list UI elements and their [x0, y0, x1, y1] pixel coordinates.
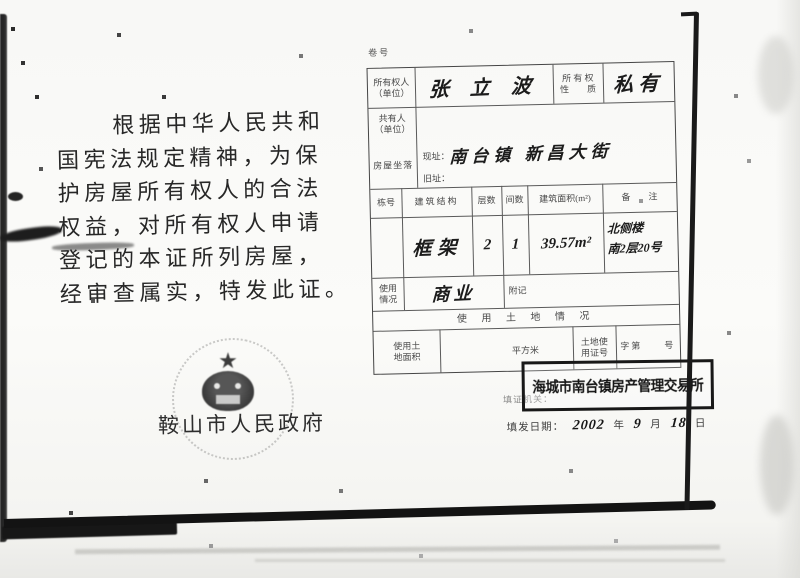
header-floors: 层数	[471, 186, 502, 216]
scan-blotch	[760, 415, 794, 515]
old-address-label: 旧址：	[423, 173, 455, 186]
remarks-line2: 南2层20号	[607, 237, 678, 256]
land-area-label: 使用土 地面积	[373, 329, 440, 373]
co-owner-label: 共有人 （单位）	[368, 107, 416, 141]
scan-blotch	[758, 36, 794, 114]
scanned-certificate-page: 根据中华人民共和 国宪法规定精神，为保 护房屋所有权人的合法 权益，对所有权人申…	[0, 0, 800, 578]
month-unit: 月	[650, 419, 662, 430]
emblem-body	[202, 371, 254, 411]
owner-value: 张 立 波	[414, 64, 553, 109]
year-unit: 年	[613, 420, 625, 431]
current-address-value: 南台镇 新昌大街	[449, 134, 670, 169]
scan-bottom-edge	[4, 500, 716, 528]
remarks-line1: 北侧楼	[607, 217, 678, 236]
preamble-paragraph: 根据中华人民共和 国宪法规定精神，为保 护房屋所有权人的合法 权益，对所有权人申…	[56, 104, 360, 311]
scan-streak	[255, 559, 725, 562]
scan-streak	[75, 545, 720, 555]
location-label: 房屋坐落	[369, 150, 417, 181]
ownership-nature-label: 所 有 权 性 质	[552, 64, 603, 104]
preamble-line: 经审查属实，特发此证。	[60, 271, 361, 311]
header-rooms: 间数	[501, 185, 528, 215]
scan-left-edge	[0, 14, 7, 542]
header-floor-area: 建筑面积(m²)	[527, 184, 603, 215]
usage-label: 使用 情况	[372, 277, 404, 311]
scan-right-edge	[684, 12, 699, 510]
rooms-value: 1	[502, 214, 530, 275]
issuing-authority: 鞍山市人民政府	[158, 406, 358, 439]
ownership-nature-value: 私有	[602, 61, 674, 103]
scan-specks	[0, 0, 2, 2]
issuing-office-name: 海城市南台镇房产管理交易所	[532, 374, 703, 397]
issue-month-value: 9	[628, 417, 647, 433]
header-remarks: 备 注	[602, 182, 677, 213]
floor-area-value: 39.57m²	[528, 212, 605, 275]
registration-form: 卷号 所有权人 （单位） 张 立 波 所 有 权 性 质	[364, 39, 686, 476]
ink-smudge	[0, 224, 63, 245]
preamble-line: 根据中华人民共和	[56, 104, 357, 144]
issue-year-value: 2002	[567, 418, 610, 435]
issue-date-label: 填发日期：	[507, 422, 565, 434]
floors-value: 2	[472, 215, 504, 276]
scan-right-hook	[681, 12, 697, 17]
header-structure: 建筑结构	[401, 187, 472, 218]
issue-date-row: 填发日期： 2002 年 9 月 18 日	[507, 415, 707, 436]
ink-smudge	[8, 192, 23, 201]
issuing-office-stamp: 海城市南台镇房产管理交易所	[521, 359, 714, 411]
header-building-no: 栋号	[370, 188, 402, 218]
owner-label: 所有权人 （单位）	[368, 68, 416, 108]
form-table: 所有权人 （单位） 张 立 波 所 有 权 性 质 私有 共有人 （单位） 房屋…	[366, 61, 681, 375]
file-number-label: 卷号	[368, 45, 390, 58]
star-icon: ★	[196, 352, 260, 370]
land-area-unit: 平方米	[512, 344, 568, 357]
day-unit: 日	[695, 418, 707, 429]
appendix-label: 附记	[508, 285, 538, 298]
structure-value: 框架	[402, 215, 474, 278]
usage-value: 商业	[403, 274, 504, 311]
preamble-line: 护房屋所有权人的合法	[57, 171, 358, 211]
